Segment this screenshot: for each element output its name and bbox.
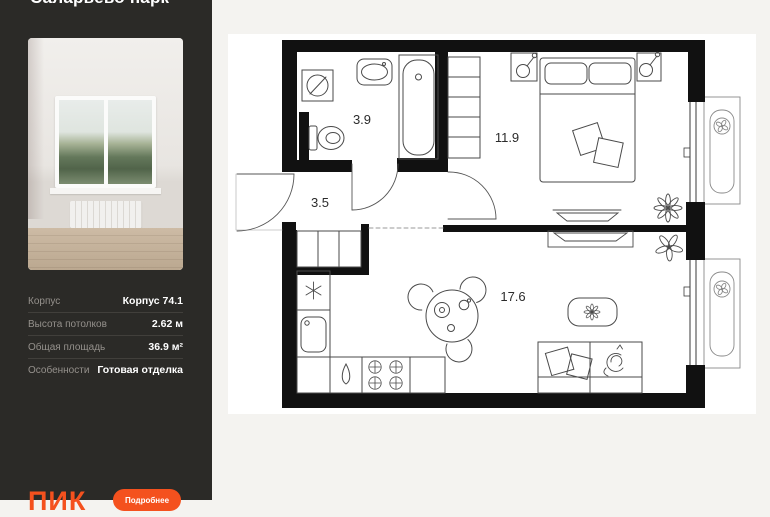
spec-label: Особенности xyxy=(28,365,89,376)
room-area-bedroom: 11.9 xyxy=(495,130,519,145)
room-area-hallway: 3.5 xyxy=(311,195,329,210)
spec-label: Высота потолков xyxy=(28,319,107,330)
room-area-bathroom: 3.9 xyxy=(353,112,371,127)
spec-label: Корпус xyxy=(28,296,60,307)
balcony-living xyxy=(704,259,740,368)
spec-row-total-area: Общая площадь 36.9 м² xyxy=(28,336,183,359)
spec-value: 2.62 м xyxy=(152,318,183,330)
spec-row-features: Особенности Готовая отделка xyxy=(28,359,183,381)
spec-value: 36.9 м² xyxy=(148,341,183,353)
spec-value: Корпус 74.1 xyxy=(123,295,183,307)
spec-row-ceiling-height: Высота потолков 2.62 м xyxy=(28,313,183,336)
photo-window-sill xyxy=(50,188,161,194)
details-button[interactable]: Подробнее xyxy=(113,489,181,511)
photo-floor xyxy=(28,228,183,270)
listing-sidebar: Саларьево парк Корпус Корпус 74.1 Высота… xyxy=(0,0,212,500)
photo-window-pane-left xyxy=(59,100,104,184)
photo-wall-shade xyxy=(28,38,44,219)
floor-plan-area: 3.9 11.9 3.5 17.6 xyxy=(212,0,770,500)
apartment-photo xyxy=(28,38,183,270)
photo-window xyxy=(55,96,156,188)
balcony-bedroom xyxy=(704,97,740,204)
photo-window-pane-right xyxy=(108,100,153,184)
spec-list: Корпус Корпус 74.1 Высота потолков 2.62 … xyxy=(28,290,183,381)
photo-radiator xyxy=(70,201,142,228)
floor-plan: 3.9 11.9 3.5 17.6 xyxy=(212,0,770,500)
spec-row-building: Корпус Корпус 74.1 xyxy=(28,290,183,313)
room-area-kitchen-living: 17.6 xyxy=(500,289,525,304)
project-title: Саларьево парк xyxy=(30,0,169,8)
spec-value: Готовая отделка xyxy=(97,364,183,376)
spec-label: Общая площадь xyxy=(28,342,105,353)
pik-logo[interactable]: ПИК xyxy=(28,486,86,517)
